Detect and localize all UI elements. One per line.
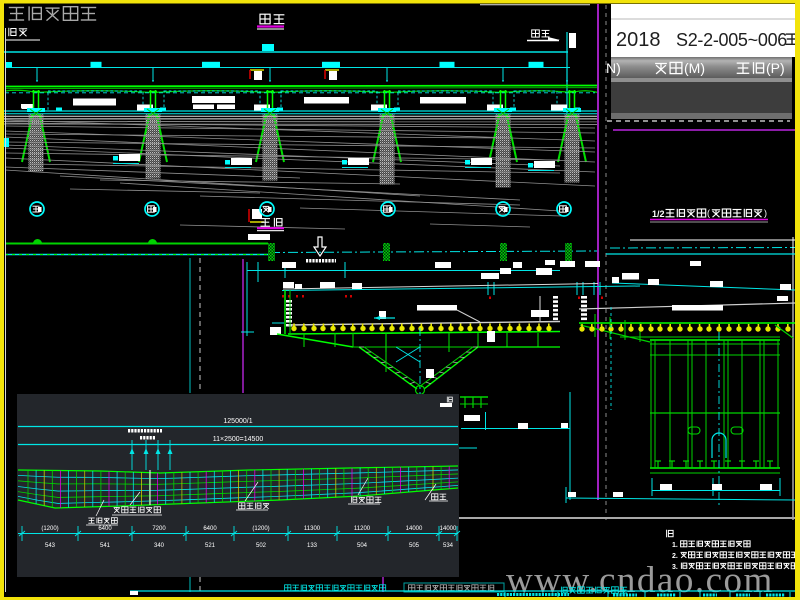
svg-text:): ) xyxy=(764,208,767,218)
svg-text:7200: 7200 xyxy=(152,526,166,532)
svg-text:(1200): (1200) xyxy=(252,526,269,532)
svg-text:534: 534 xyxy=(443,543,454,549)
svg-text:(M): (M) xyxy=(684,60,705,76)
svg-text:(1200): (1200) xyxy=(41,526,58,532)
svg-text:133: 133 xyxy=(307,543,318,549)
svg-text:1.: 1. xyxy=(672,542,678,549)
svg-text:11×2500=14500: 11×2500=14500 xyxy=(213,436,264,443)
svg-text:11300: 11300 xyxy=(304,526,321,532)
svg-text:(: ( xyxy=(707,208,710,218)
svg-text:(P): (P) xyxy=(766,60,785,76)
svg-text:502: 502 xyxy=(256,543,267,549)
svg-text:6400: 6400 xyxy=(203,526,217,532)
svg-text:541: 541 xyxy=(100,543,111,549)
svg-text:2.: 2. xyxy=(672,553,678,560)
svg-text:1/2: 1/2 xyxy=(652,209,665,219)
svg-text:340: 340 xyxy=(154,543,165,549)
svg-text:505: 505 xyxy=(409,543,420,549)
svg-text:11200: 11200 xyxy=(354,526,371,532)
svg-text:14000: 14000 xyxy=(406,526,423,532)
svg-text:N): N) xyxy=(606,60,621,76)
svg-text:543: 543 xyxy=(45,543,56,549)
svg-text:521: 521 xyxy=(205,543,216,549)
svg-text:6400: 6400 xyxy=(98,526,112,532)
svg-text:504: 504 xyxy=(357,543,368,549)
svg-text:14000: 14000 xyxy=(440,526,457,532)
svg-text:125000/1: 125000/1 xyxy=(223,418,252,425)
svg-text:S2-2-005~006: S2-2-005~006 xyxy=(676,30,787,50)
svg-text:2018: 2018 xyxy=(616,29,661,51)
